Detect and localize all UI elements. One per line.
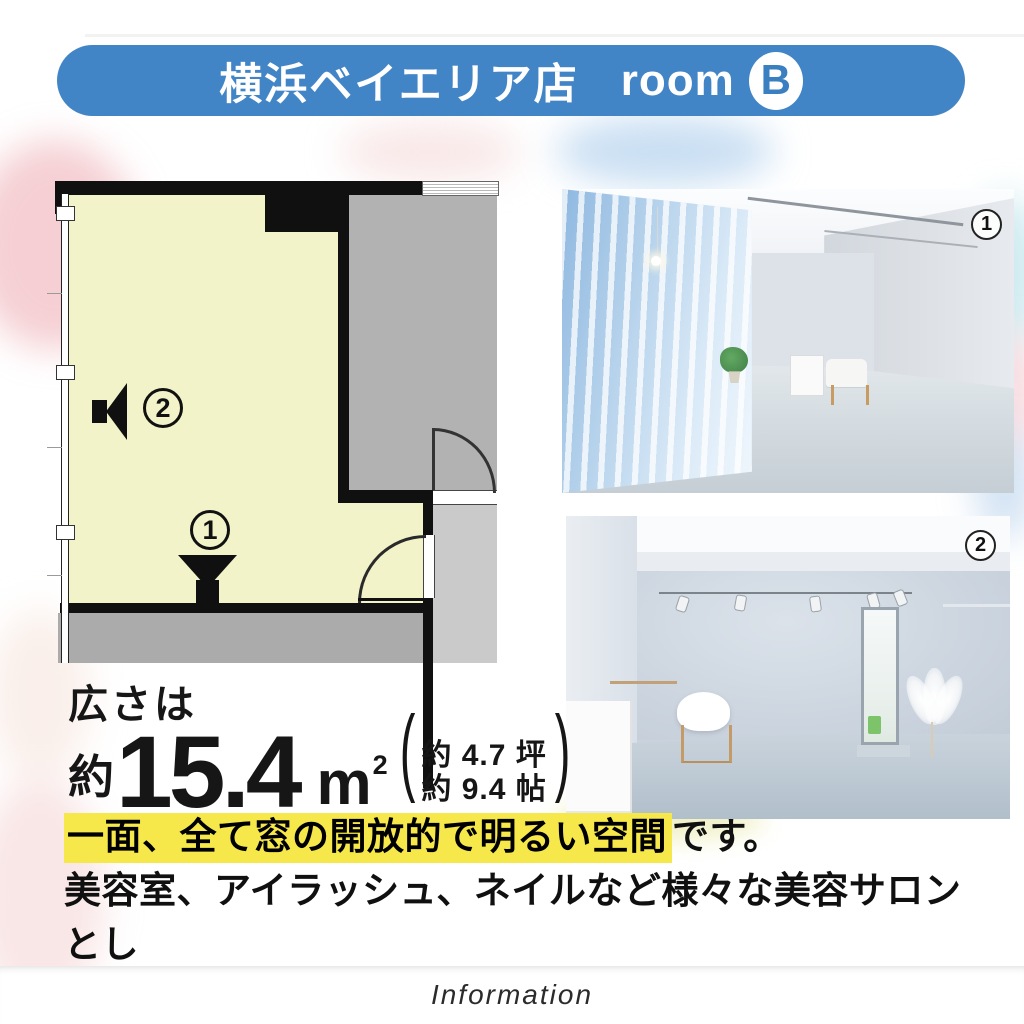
floorplan-window-wall <box>61 194 69 663</box>
room-letter: B <box>761 56 791 104</box>
size-value: 15.4 <box>116 732 299 814</box>
photo1-chair-legs <box>831 385 869 405</box>
floorplan-divider-wall <box>338 181 349 503</box>
floorplan-window-band <box>422 181 499 196</box>
photo1-chair <box>826 359 867 386</box>
floorplan-window-mullion <box>56 525 75 540</box>
floorplan-window-mullion <box>56 206 75 221</box>
photo1-pendant-lamp <box>651 256 661 266</box>
photo1-number-badge: 1 <box>971 209 1002 240</box>
information-label: Information <box>431 979 593 1011</box>
photo2-counter-ledge <box>610 681 677 684</box>
camera-marker-1: 1 <box>190 510 230 550</box>
floorplan-column <box>265 181 349 232</box>
photo2-chair-frame <box>681 725 731 763</box>
room-word: room <box>621 56 735 106</box>
floorplan-grayroom-bottom-wall <box>338 490 433 503</box>
size-unit-base: m <box>317 749 372 818</box>
photo2-number: 2 <box>975 534 986 557</box>
floorplan-door-leaf-grayroom <box>432 428 435 490</box>
camera-marker-2: 2 <box>143 388 183 428</box>
floorplan-lower-strip <box>58 613 425 663</box>
photo2-pampas-stem <box>931 722 933 758</box>
floorplan-bottom-wall-stub <box>425 607 433 663</box>
photo1-cabinet <box>790 355 824 397</box>
photo2-number-badge: 2 <box>965 530 996 561</box>
photo-room-view-2: 2 <box>566 516 1010 819</box>
photo1-number: 1 <box>981 213 992 236</box>
description-line-1-rest: です。 <box>672 816 781 857</box>
flyer-canvas: 横浜ベイエリア店 room B <box>0 0 1024 1024</box>
floorplan-bottom-wall <box>60 603 433 613</box>
size-paren-close: ) <box>555 693 571 814</box>
photo2-cabinets <box>566 701 632 813</box>
size-row: 約 15.4 m2 ( 約 4.7 坪 約 9.4 帖 ) <box>68 732 570 814</box>
camera-2-icon <box>92 400 107 423</box>
size-jo: 約 9.4 帖 <box>421 773 546 807</box>
description-highlight: 一面、全て窓の開放的で明るい空間 <box>64 813 672 863</box>
photo2-spotlight <box>809 596 822 613</box>
size-conversions: 約 4.7 坪 約 9.4 帖 <box>421 739 546 813</box>
floorplan-window-tick <box>47 293 62 294</box>
description-line-2: 美容室、アイラッシュ、ネイルなど様々な美容サロンとし <box>64 864 980 972</box>
photo2-spotlight <box>733 594 747 612</box>
photo2-shelf <box>943 604 1010 607</box>
store-name: 横浜ベイエリア店 <box>219 50 579 112</box>
size-approx-prefix: 約 <box>68 741 114 814</box>
photo1-pendant-lamp-wire <box>657 207 658 259</box>
photo-room-view-1: 1 <box>562 189 1014 493</box>
photo2-doorway-plant <box>868 716 881 734</box>
floorplan-window-tick <box>47 447 62 448</box>
floorplan-top-wall <box>55 181 422 195</box>
camera-1-icon <box>196 580 219 605</box>
size-section: 広さは 約 15.4 m2 ( 約 4.7 坪 約 9.4 帖 ) <box>68 672 570 814</box>
photo2-door-step <box>857 745 910 757</box>
room-label-group: room B <box>621 52 803 110</box>
size-paren-open: ( <box>400 693 416 814</box>
footer-band: Information <box>0 966 1024 1024</box>
floor-plan: 2 1 <box>45 175 505 667</box>
room-letter-badge: B <box>749 52 803 110</box>
background-blur-blob-blue-top <box>555 116 775 186</box>
background-blur-blob-pink-top <box>340 122 520 182</box>
floorplan-corridor <box>433 503 497 663</box>
photo1-plant <box>720 347 748 373</box>
background-edge-line <box>85 34 1024 37</box>
description-line-1: 一面、全て窓の開放的で明るい空間です。 <box>64 810 980 864</box>
floorplan-window-mullion <box>56 365 75 380</box>
photo2-floor <box>566 734 1010 819</box>
floorplan-window-tick <box>47 575 62 576</box>
header-banner: 横浜ベイエリア店 room B <box>57 45 965 116</box>
size-unit-superscript: 2 <box>373 755 388 776</box>
camera-marker-1-number: 1 <box>202 515 217 546</box>
size-unit: m2 <box>317 760 388 813</box>
camera-marker-2-number: 2 <box>155 393 170 424</box>
floorplan-door-leaf-room <box>358 598 423 601</box>
size-tsubo: 約 4.7 坪 <box>421 739 546 773</box>
